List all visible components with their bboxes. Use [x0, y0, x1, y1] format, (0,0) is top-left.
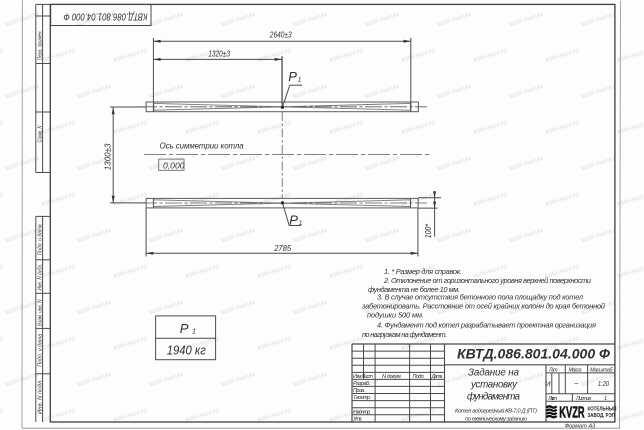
svg-text:Задание на: Задание на — [468, 367, 520, 378]
svg-text:КВТД.086.801.04.000 Ф: КВТД.086.801.04.000 Ф — [457, 346, 610, 361]
svg-text:забетонировать. Расстояние от: забетонировать. Расстояние от осей крайн… — [361, 301, 605, 310]
svg-text:Утв.: Утв. — [352, 417, 362, 423]
svg-text:–: – — [573, 378, 579, 387]
svg-text:Инв. N дубл.: Инв. N дубл. — [37, 264, 43, 291]
svg-text:Справ. N: Справ. N — [37, 125, 43, 143]
svg-text:1: 1 — [298, 76, 302, 83]
svg-text:Инв. N подл.: Инв. N подл. — [37, 379, 43, 414]
svg-text:подушки 500 мм.: подушки 500 мм. — [367, 311, 424, 320]
svg-text:Н.контр.: Н.контр. — [353, 410, 371, 416]
svg-text:2785: 2785 — [273, 244, 292, 253]
svg-text:1. * Размер для справок.: 1. * Размер для справок. — [384, 267, 462, 276]
svg-text:Подп. и дата: Подп. и дата — [37, 334, 43, 367]
svg-text:по техническому заданию: по техническому заданию — [465, 417, 528, 423]
svg-text:И: И — [545, 379, 551, 388]
svg-text:КВТД.086.801.04.000 Ф: КВТД.086.801.04.000 Ф — [64, 11, 148, 22]
svg-text:1320±3: 1320±3 — [208, 49, 230, 59]
svg-text:Подп. и дата: Подп. и дата — [37, 224, 43, 255]
svg-text:Разраб.: Разраб. — [353, 381, 370, 387]
svg-text:Формат А3: Формат А3 — [565, 424, 596, 430]
svg-text:1:20: 1:20 — [598, 379, 610, 388]
svg-text:Лист: Лист — [547, 396, 558, 402]
svg-text:1: 1 — [192, 329, 196, 336]
svg-text:P: P — [289, 212, 298, 227]
svg-text:3. В случае отсутствия бетонно: 3. В случае отсутствия бетонного пола пл… — [377, 292, 584, 301]
svg-text:Пров.: Пров. — [353, 388, 365, 394]
svg-text:ЗАВОД, РЭП: ЗАВОД, РЭП — [588, 413, 616, 420]
svg-text:Ось симметрии котла: Ось симметрии котла — [160, 142, 245, 151]
svg-text:Перв. примен.: Перв. примен. — [37, 30, 43, 60]
svg-text:Котел водогрейный КВ-7,0 Д (ПТ: Котел водогрейный КВ-7,0 Д (ПТ) — [455, 408, 537, 415]
svg-text:КОТЕЛЬНЫЙ: КОТЕЛЬНЫЙ — [588, 404, 617, 413]
svg-text:100*: 100* — [424, 223, 434, 238]
svg-text:Лит.: Лит. — [548, 368, 558, 374]
svg-text:1940 кг: 1940 кг — [167, 343, 206, 357]
svg-text:фундамента: фундамента — [467, 391, 521, 402]
svg-text:по нагрузкам на фундамент.: по нагрузкам на фундамент. — [362, 330, 447, 339]
svg-text:0,000: 0,000 — [163, 160, 185, 170]
svg-text:Подп.: Подп. — [413, 374, 425, 380]
svg-text:N докум.: N докум. — [382, 374, 402, 380]
svg-text:Дата: Дата — [431, 374, 443, 380]
svg-text:1: 1 — [299, 220, 303, 227]
svg-text:Т.контр.: Т.контр. — [353, 395, 371, 401]
svg-text:2. Отклонение от горизонтально: 2. Отклонение от горизонтального уровня … — [383, 276, 591, 285]
svg-text:P: P — [288, 69, 297, 84]
svg-text:Масса: Масса — [569, 368, 582, 374]
svg-text:Масштаб: Масштаб — [590, 368, 613, 374]
svg-text:P: P — [180, 321, 189, 336]
svg-text:Листов: Листов — [575, 396, 591, 402]
svg-text:1: 1 — [604, 396, 607, 402]
svg-text:Взам. инв. N: Взам. инв. N — [37, 299, 43, 326]
svg-text:установку: установку — [470, 379, 518, 390]
svg-text:1300±3: 1300±3 — [103, 143, 112, 170]
svg-text:KVZR: KVZR — [559, 403, 584, 421]
svg-text:Изм.Лист: Изм.Лист — [353, 374, 374, 380]
svg-text:4. Фундамент под котел разраба: 4. Фундамент под котел разрабатывает про… — [377, 321, 596, 330]
svg-text:2640±3: 2640±3 — [269, 30, 292, 40]
